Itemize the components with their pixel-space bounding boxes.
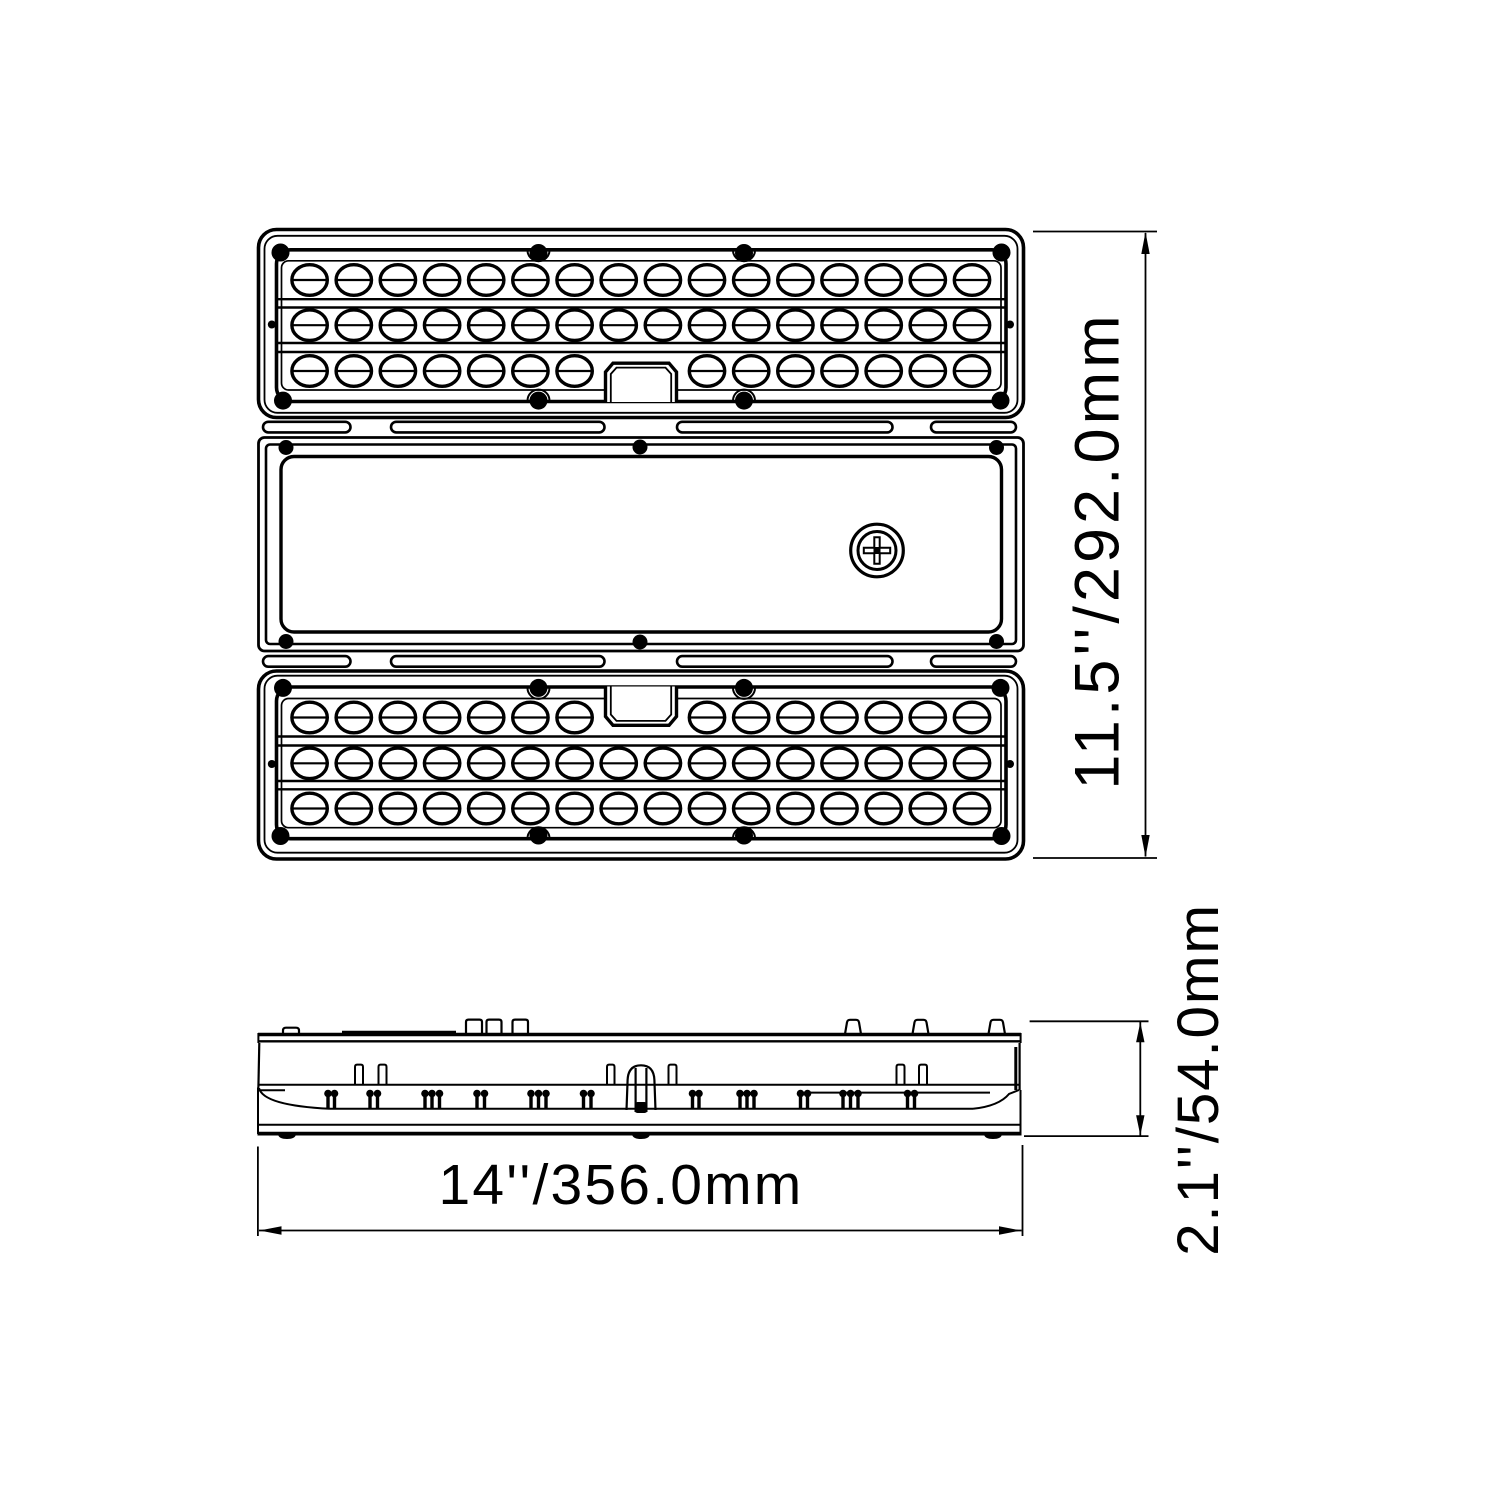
- svg-text:11.5''/292.0mm: 11.5''/292.0mm: [1063, 311, 1133, 789]
- svg-text:2.1''/54.0mm: 2.1''/54.0mm: [1166, 903, 1231, 1256]
- svg-text:14''/356.0mm: 14''/356.0mm: [438, 1153, 803, 1217]
